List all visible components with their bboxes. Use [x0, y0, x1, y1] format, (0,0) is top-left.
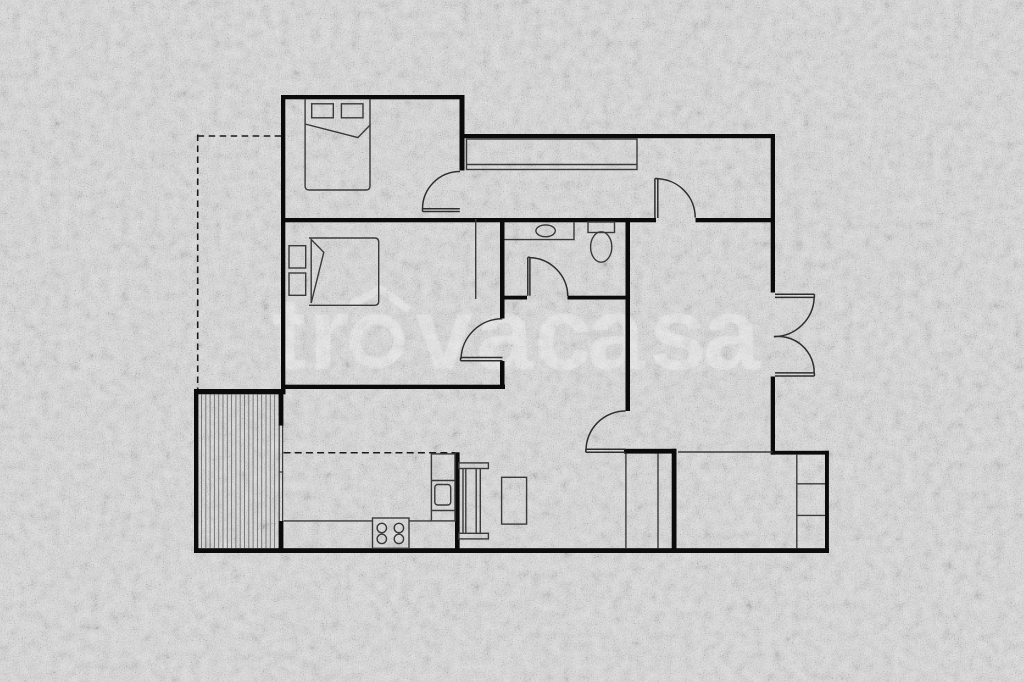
svg-text:a: a — [703, 276, 761, 391]
svg-text:a: a — [476, 276, 534, 391]
svg-text:r: r — [309, 276, 349, 391]
svg-text:v: v — [415, 276, 472, 391]
svg-text:s: s — [649, 276, 706, 391]
svg-text:a: a — [587, 276, 645, 391]
svg-text:c: c — [534, 276, 591, 391]
